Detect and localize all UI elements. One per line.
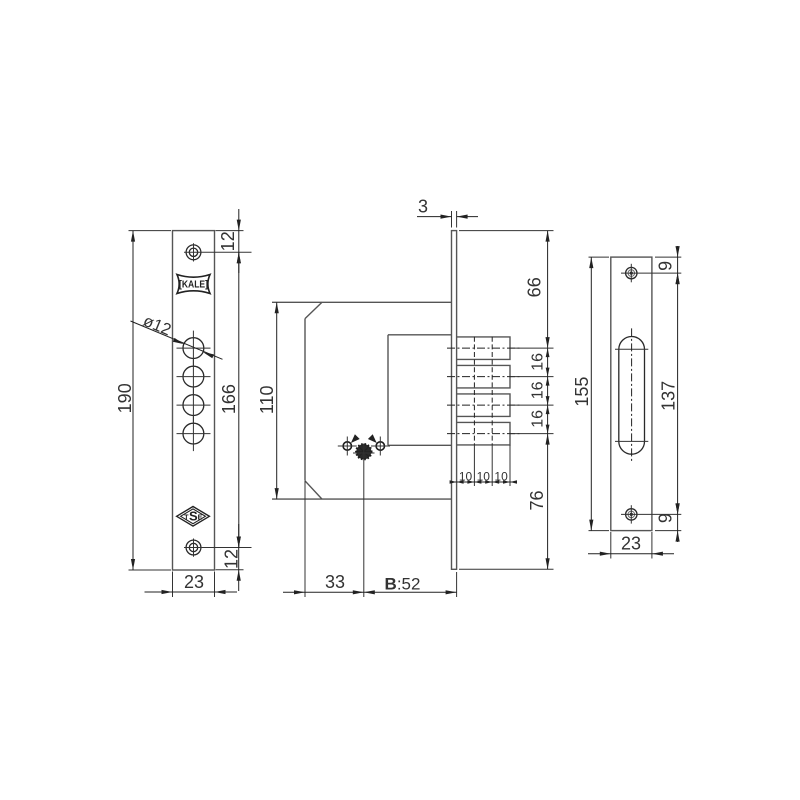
svg-text:110: 110: [257, 385, 277, 414]
svg-text:166: 166: [219, 384, 239, 414]
svg-text:10: 10: [494, 470, 508, 484]
svg-text:23: 23: [184, 572, 204, 592]
svg-text:23: 23: [621, 534, 641, 554]
svg-text:9: 9: [656, 513, 676, 523]
svg-text:16: 16: [529, 353, 546, 371]
svg-text:B:52: B:52: [385, 575, 421, 594]
svg-text:3: 3: [418, 197, 428, 217]
svg-text:12: 12: [218, 231, 238, 251]
svg-text:137: 137: [659, 381, 679, 411]
svg-text:10: 10: [459, 470, 473, 484]
svg-text:76: 76: [527, 490, 547, 510]
svg-text:ø12: ø12: [140, 312, 173, 340]
svg-text:16: 16: [529, 381, 546, 399]
svg-text:12: 12: [221, 549, 241, 569]
svg-text:155: 155: [572, 377, 592, 407]
svg-text:[KALE]: [KALE]: [179, 280, 208, 291]
svg-text:33: 33: [325, 572, 345, 592]
svg-text:E: E: [198, 514, 203, 521]
svg-text:190: 190: [115, 383, 135, 413]
svg-text:66: 66: [525, 277, 545, 297]
svg-text:9: 9: [656, 261, 676, 271]
svg-text:10: 10: [477, 470, 491, 484]
svg-text:16: 16: [529, 410, 546, 428]
